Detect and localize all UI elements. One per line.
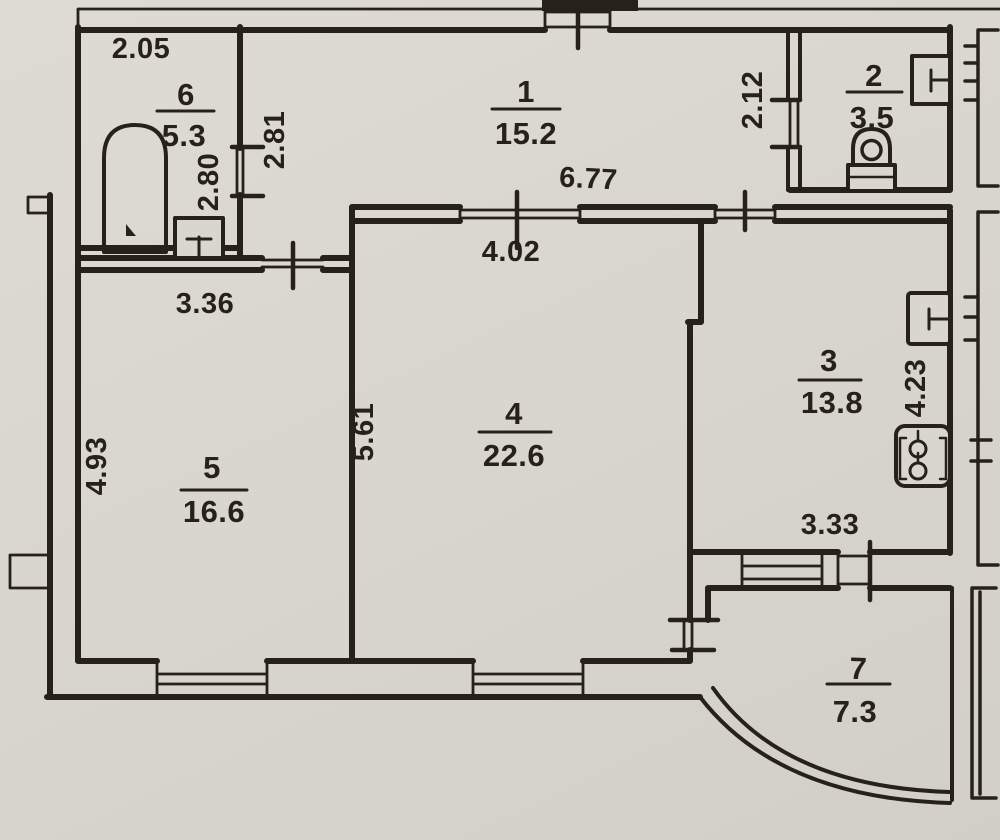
bathtub-icon [104,125,166,252]
dim-room3-height: 4.23 [900,359,932,417]
room-2-area: 3.5 [850,100,895,135]
room-7-number: 7 [849,651,868,687]
room-6-area: 5.3 [162,118,207,153]
room-4-number: 4 [505,396,523,431]
room-label-bars [157,92,902,684]
room-5-number: 5 [203,450,221,485]
dim-room5-width: 3.36 [176,288,234,320]
balcony-curve [700,588,952,803]
entrance-door [542,0,638,11]
dim-room5-height: 4.93 [81,437,113,495]
room-5-area: 16.6 [183,494,245,529]
room-7-area: 7.3 [833,694,878,729]
floor-plan-svg: 2.05 6 5.3 2.80 2.81 1 15.2 6.77 2.12 2 … [0,0,1000,840]
room-1-number: 1 [517,74,535,109]
room-1-area: 15.2 [495,116,557,151]
bathtub-drain-icon [126,224,136,236]
room-3-area: 13.8 [801,385,863,420]
dim-room6-height: 2.80 [193,153,225,211]
room-4-area: 22.6 [483,438,545,473]
room-2-number: 2 [865,58,883,93]
dim-room3-width: 3.33 [801,509,859,541]
dim-room4-height: 5.61 [348,403,380,461]
room-3-number: 3 [820,343,838,378]
dim-hall-width: 6.77 [558,162,618,197]
dim-hall-right-height: 2.12 [737,71,769,129]
dim-hall-left-height: 2.81 [259,111,291,169]
floor-plan-page: 2.05 6 5.3 2.80 2.81 1 15.2 6.77 2.12 2 … [0,0,1000,840]
room-6-number: 6 [177,77,195,112]
external-brackets [965,30,998,798]
dim-room6-width: 2.05 [112,33,170,65]
dim-room4-width: 4.02 [482,236,540,268]
